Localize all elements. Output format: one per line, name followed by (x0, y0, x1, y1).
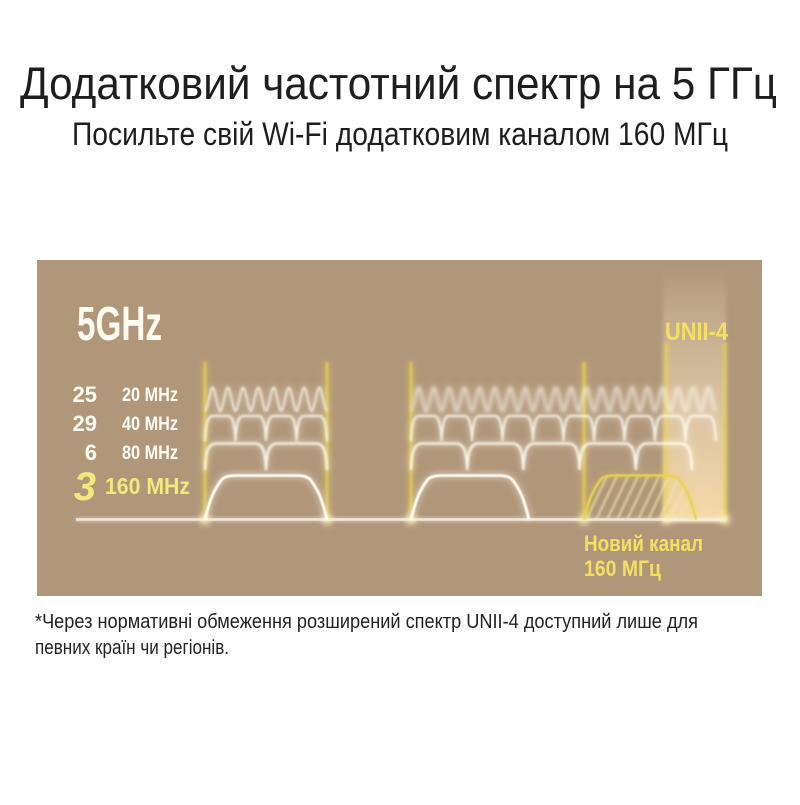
svg-text:160 МГц: 160 МГц (584, 556, 661, 581)
svg-text:*Через нормативні обмеження ро: *Через нормативні обмеження розширений с… (35, 611, 698, 633)
svg-text:80 MHz: 80 MHz (122, 443, 178, 464)
svg-text:певних країн чи регіонів.: певних країн чи регіонів. (35, 637, 229, 659)
svg-text:5GHz: 5GHz (77, 298, 162, 351)
svg-text:29: 29 (73, 411, 97, 436)
svg-text:6: 6 (85, 440, 97, 465)
svg-text:25: 25 (73, 382, 97, 407)
svg-text:40 MHz: 40 MHz (122, 414, 178, 435)
svg-text:3: 3 (74, 465, 96, 509)
svg-text:Додатковий частотний спектр на: Додатковий частотний спектр на 5 ГГц (20, 58, 777, 109)
svg-text:160 MHz: 160 MHz (105, 473, 190, 499)
svg-text:Новий канал: Новий канал (584, 531, 703, 556)
svg-text:Посильте свій Wi-Fi додатковим: Посильте свій Wi-Fi додатковим каналом 1… (72, 116, 728, 152)
svg-text:UNII-4: UNII-4 (665, 318, 728, 346)
svg-text:20 MHz: 20 MHz (122, 385, 178, 406)
